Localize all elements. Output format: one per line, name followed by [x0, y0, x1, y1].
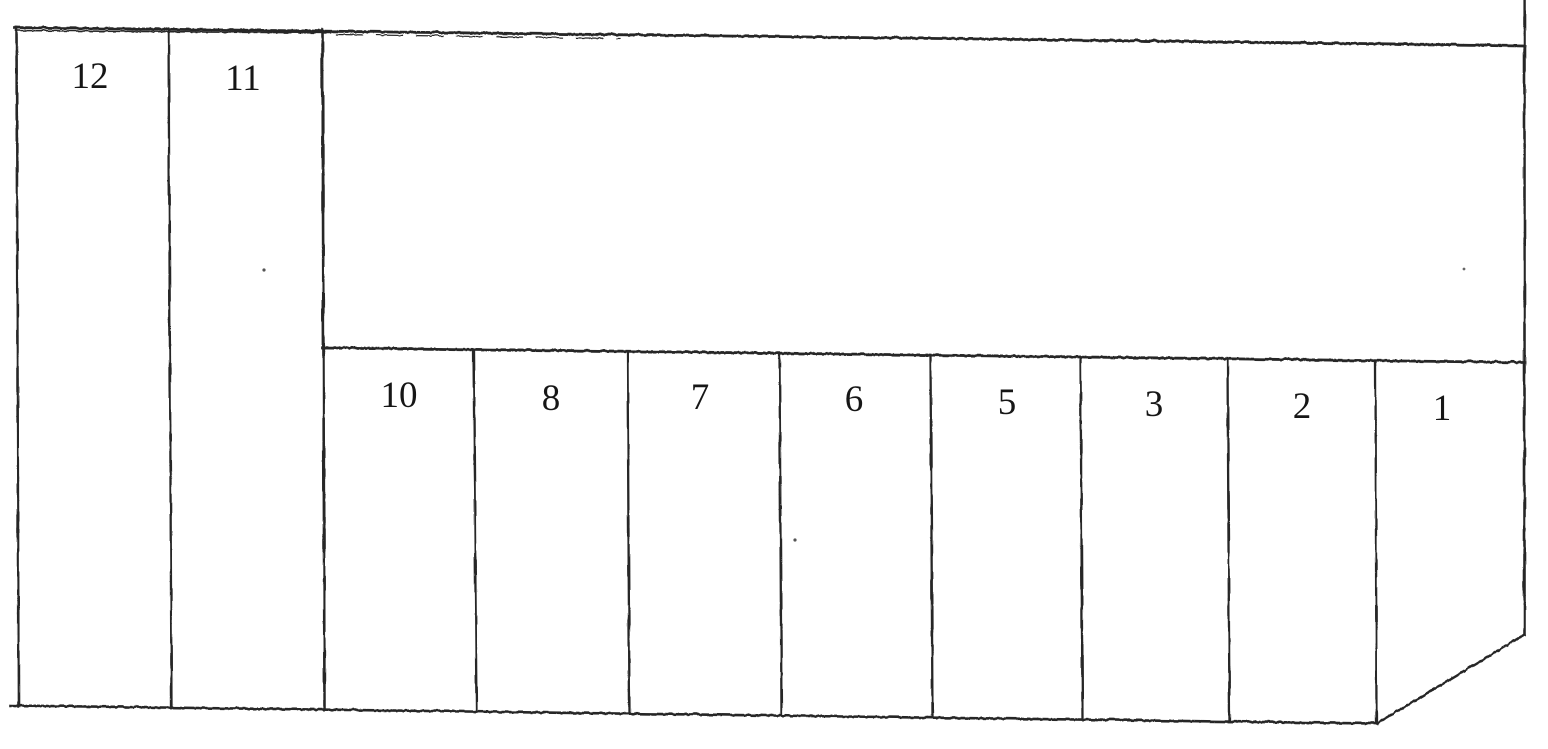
svg-text:3: 3	[1145, 384, 1164, 425]
svg-text:6: 6	[845, 379, 864, 420]
svg-text:5: 5	[998, 382, 1017, 423]
svg-text:10: 10	[381, 375, 418, 416]
svg-text:12: 12	[72, 56, 109, 97]
svg-text:8: 8	[542, 378, 561, 419]
svg-text:11: 11	[225, 58, 261, 99]
svg-text:1: 1	[1433, 388, 1452, 429]
svg-text:2: 2	[1293, 386, 1312, 427]
svg-text:7: 7	[691, 377, 710, 418]
